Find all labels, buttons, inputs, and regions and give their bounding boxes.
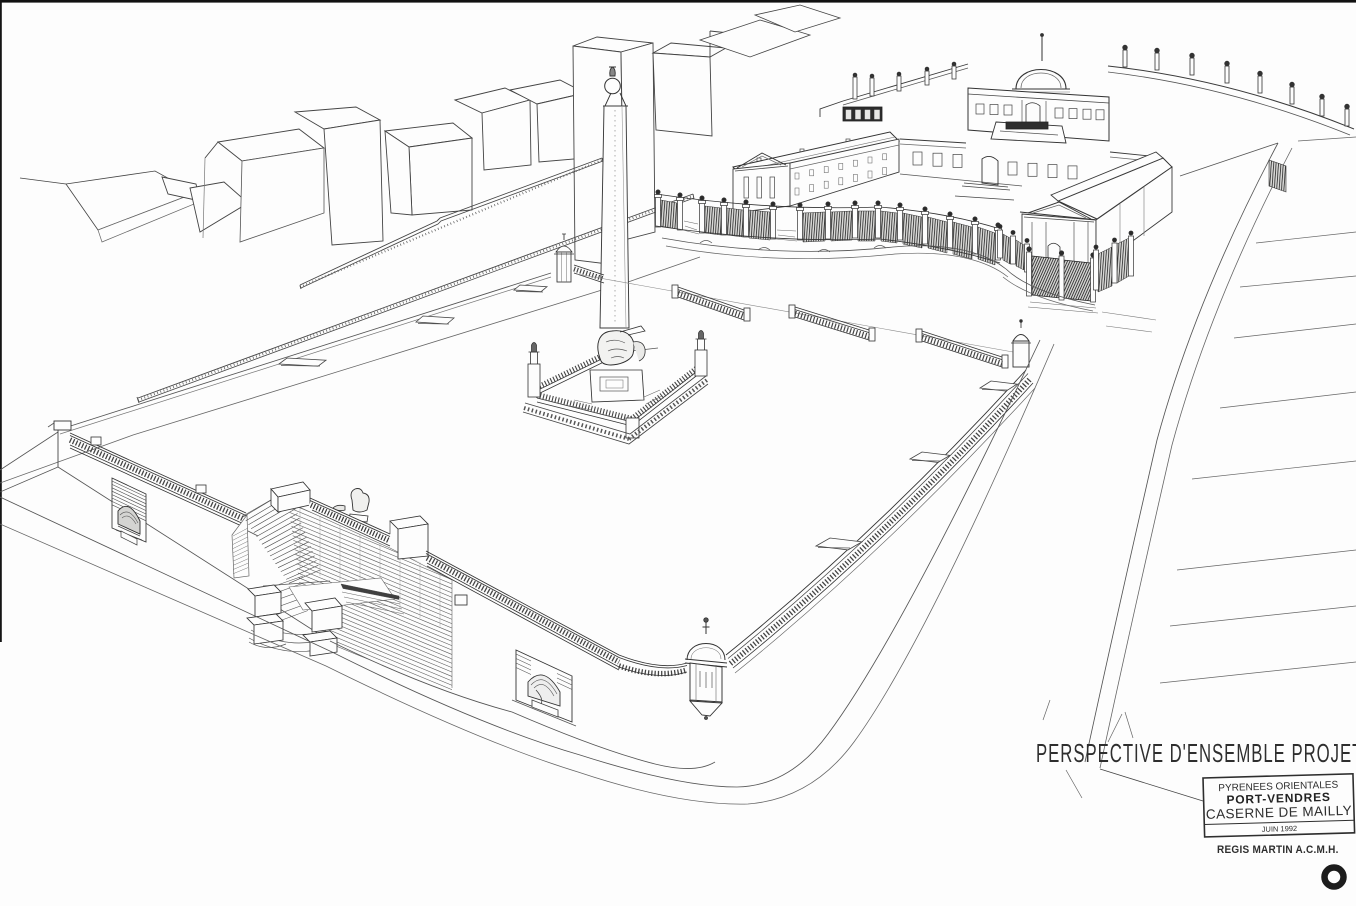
svg-text:JUIN 1992: JUIN 1992 [1262, 824, 1298, 834]
svg-text:PERSPECTIVE D'ENSEMBLE PROJET: PERSPECTIVE D'ENSEMBLE PROJET [1036, 738, 1356, 768]
svg-text:REGIS MARTIN A.C.M.H.: REGIS MARTIN A.C.M.H. [1217, 843, 1339, 856]
